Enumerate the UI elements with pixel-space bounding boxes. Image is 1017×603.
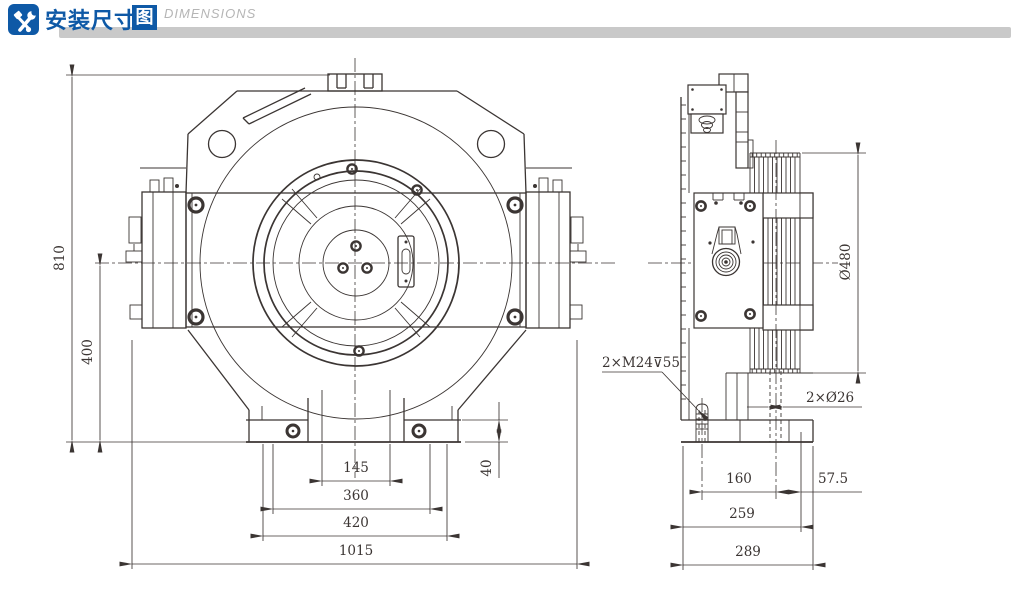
dimensions-page: 安装尺寸 图 DIMENSIONS [0, 0, 1017, 603]
frame-plate-bolts [189, 198, 522, 324]
dim-leg-width: 360 [343, 488, 369, 504]
machine-side-plate [694, 193, 763, 328]
housing-outline [186, 88, 526, 410]
base-structure [681, 373, 813, 442]
mounting-ear-hole-right [478, 131, 505, 158]
mounting-ear-hole-left [209, 131, 236, 158]
dim-center-to-edge: 57.5 [818, 471, 848, 487]
dim-tapped-holes: 2×M24⊽55 [602, 355, 680, 371]
dim-overall-depth: 289 [735, 544, 761, 560]
brake-assembly-right [526, 168, 586, 328]
dim-inner-width: 145 [343, 460, 369, 476]
dim-overall-height: 810 [52, 245, 68, 271]
dim-sheave-diameter: Ø480 [838, 244, 854, 281]
dim-overall-width: 1015 [339, 543, 373, 559]
dim-stud-to-center: 160 [726, 471, 752, 487]
technical-drawing: 810 400 40 145 360 420 [0, 0, 1017, 603]
bedplate-upright [681, 97, 689, 420]
slotted-plate [398, 236, 414, 287]
rope-guard [763, 193, 813, 330]
dim-through-holes: 2×Ø26 [806, 390, 854, 406]
dim-foot-height: 40 [479, 459, 495, 476]
dim-base-width: 259 [729, 506, 755, 522]
side-view [648, 74, 838, 500]
hidden-holes [770, 371, 781, 442]
frame-plate [186, 193, 526, 327]
junction-box [688, 85, 726, 133]
dim-foot-width: 420 [343, 515, 369, 531]
brake-assembly-left [126, 168, 186, 328]
dim-center-height: 400 [80, 339, 96, 365]
front-view [95, 58, 618, 478]
